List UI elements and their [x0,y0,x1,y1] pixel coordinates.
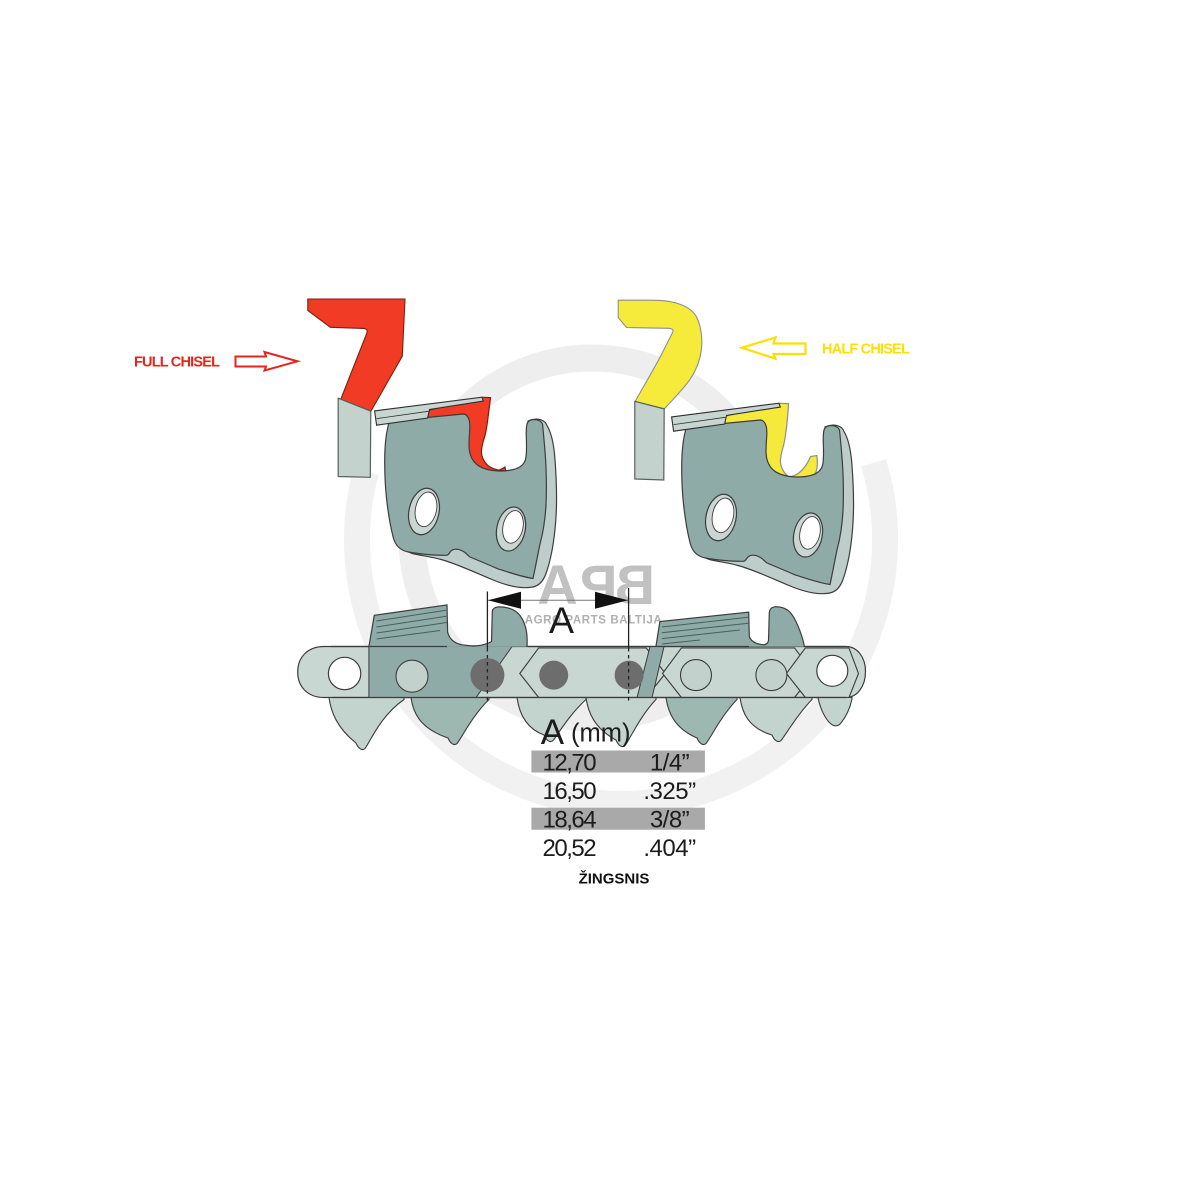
svg-text:.404”: .404” [643,835,696,862]
svg-text:A: A [541,713,565,752]
svg-text:16,50: 16,50 [543,778,597,805]
svg-text:3/8”: 3/8” [650,807,690,834]
svg-text:18,64: 18,64 [543,807,597,834]
svg-text:.325”: .325” [643,778,696,805]
svg-text:ŽINGSNIS: ŽINGSNIS [579,870,650,888]
svg-text:B: B [615,553,655,616]
svg-text:AGRO PARTS BALTIJA: AGRO PARTS BALTIJA [525,615,663,627]
svg-text:HALF CHISEL: HALF CHISEL [822,342,910,358]
svg-text:1/4”: 1/4” [650,750,690,777]
svg-text:A: A [549,599,574,641]
svg-text:12,70: 12,70 [543,750,597,777]
svg-text:FULL CHISEL: FULL CHISEL [134,355,220,371]
svg-text:(mm): (mm) [571,720,630,748]
svg-text:20,52: 20,52 [543,835,597,862]
